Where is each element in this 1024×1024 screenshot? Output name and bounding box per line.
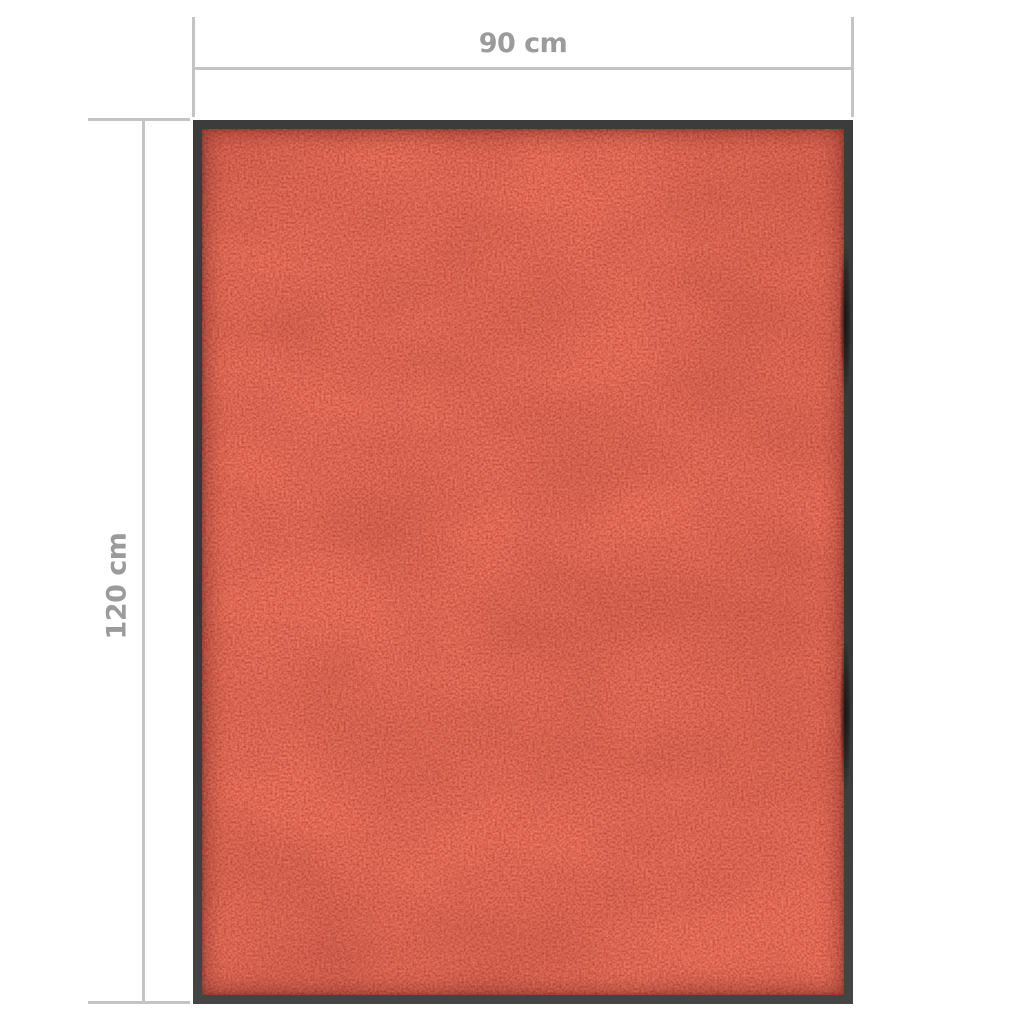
product-dimension-image: 90 cm 120 cm xyxy=(0,0,1024,1024)
width-dimension-tick-left xyxy=(192,17,195,117)
width-dimension-tick-right xyxy=(851,17,854,117)
height-dimension-label: 120 cm xyxy=(102,533,133,640)
doormat-pile xyxy=(202,129,844,995)
height-dimension-line xyxy=(142,119,145,1003)
height-dimension-tick-bottom xyxy=(88,1001,190,1004)
doormat-pile-texture xyxy=(202,129,844,995)
doormat-border xyxy=(193,120,853,1004)
width-dimension-label: 90 cm xyxy=(193,28,853,59)
width-dimension-line xyxy=(193,67,853,70)
height-dimension-tick-top xyxy=(88,118,190,121)
